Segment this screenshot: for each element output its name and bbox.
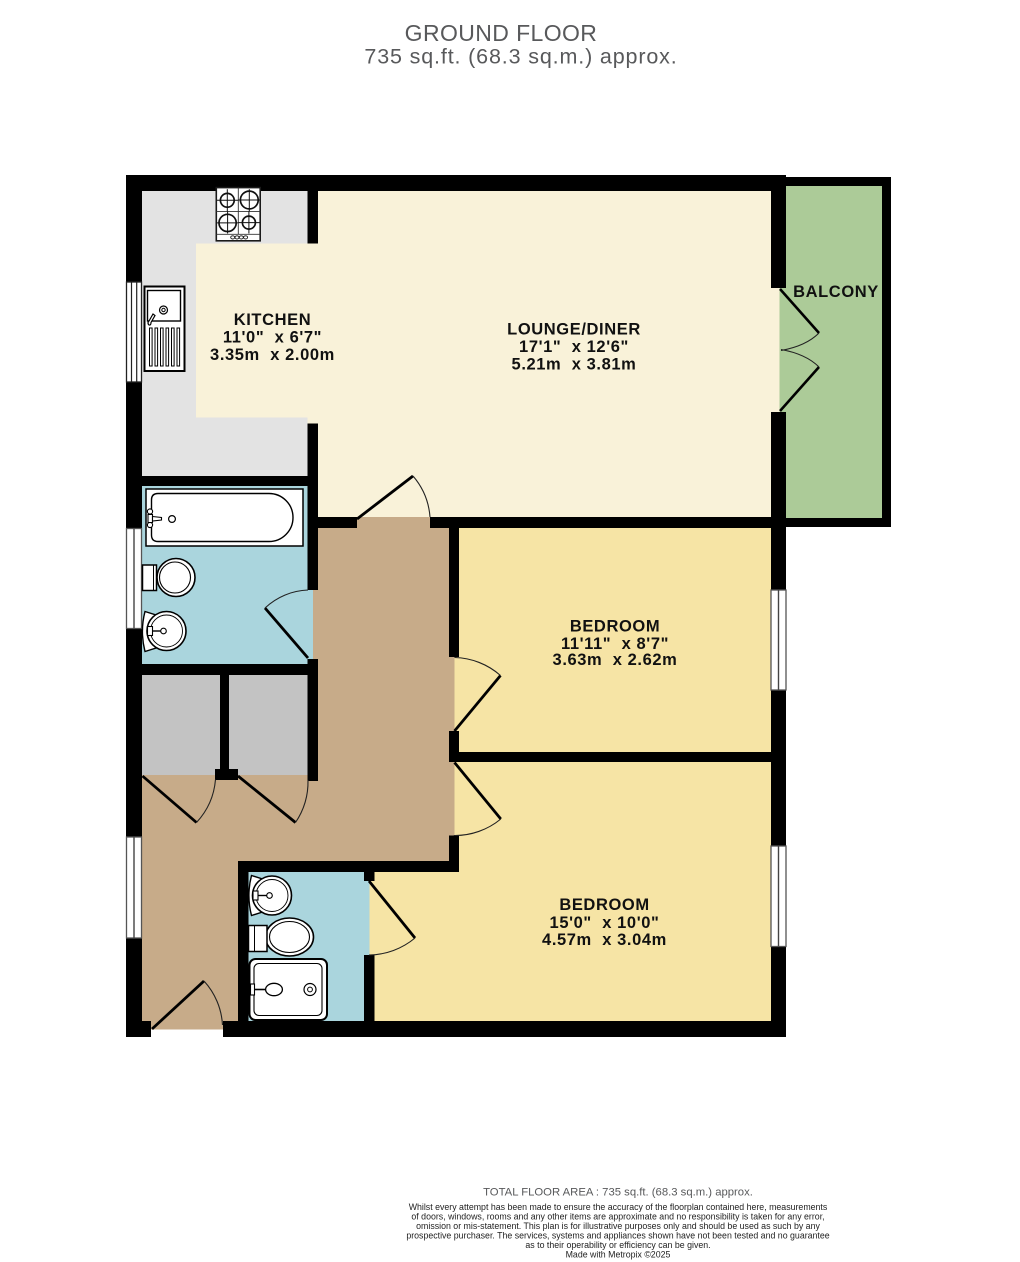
svg-text:11'0" x 6'7": 11'0" x 6'7": [223, 329, 322, 347]
svg-text:3.35m x 2.00m: 3.35m x 2.00m: [210, 346, 335, 364]
svg-text:LOUNGE/DINER: LOUNGE/DINER: [507, 321, 641, 339]
svg-text:5.21m x 3.81m: 5.21m x 3.81m: [512, 356, 637, 374]
svg-text:17'1" x 12'6": 17'1" x 12'6": [519, 338, 629, 356]
svg-text:15'0" x 10'0": 15'0" x 10'0": [550, 914, 660, 932]
svg-text:BALCONY: BALCONY: [793, 283, 879, 301]
svg-text:Made with Metropix ©2025: Made with Metropix ©2025: [566, 1250, 671, 1260]
svg-text:GROUND FLOOR: GROUND FLOOR: [405, 20, 598, 46]
svg-text:prospective purchaser. The ser: prospective purchaser. The services, sys…: [406, 1231, 829, 1241]
svg-text:as to their operability or eff: as to their operability or efficiency ca…: [525, 1240, 710, 1250]
svg-text:3.63m x 2.62m: 3.63m x 2.62m: [553, 651, 678, 669]
svg-text:TOTAL FLOOR AREA : 735 sq.ft.: TOTAL FLOOR AREA : 735 sq.ft. (68.3 sq.m…: [483, 1187, 753, 1199]
svg-text:BEDROOM: BEDROOM: [570, 618, 660, 636]
svg-text:KITCHEN: KITCHEN: [234, 311, 312, 329]
svg-text:4.57m x 3.04m: 4.57m x 3.04m: [542, 931, 667, 949]
svg-text:of doors, windows, rooms and a: of doors, windows, rooms and any other i…: [411, 1212, 824, 1222]
svg-text:Whilst every attempt has been: Whilst every attempt has been made to en…: [409, 1202, 828, 1212]
svg-text:BEDROOM: BEDROOM: [559, 896, 649, 914]
svg-text:omission or mis-statement. Thi: omission or mis-statement. This plan is …: [416, 1221, 820, 1231]
svg-text:735 sq.ft. (68.3 sq.m.) approx: 735 sq.ft. (68.3 sq.m.) approx.: [364, 45, 677, 69]
